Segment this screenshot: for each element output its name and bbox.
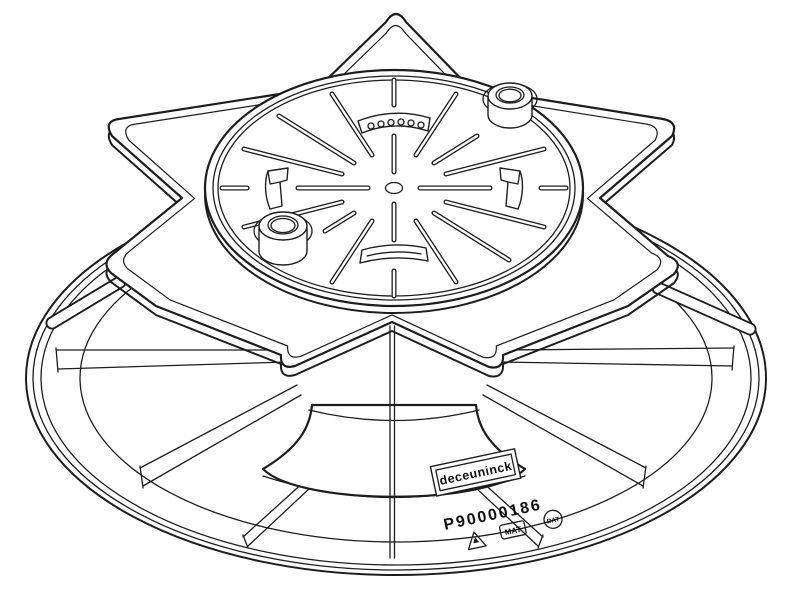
pedestal-isometric-drawing: deceuninck P90000186 MAT DAT [0, 0, 791, 600]
dat-stamp-text: DAT [546, 516, 560, 526]
technical-drawing-page: deceuninck P90000186 MAT DAT [0, 0, 791, 600]
mat-stamp: MAT [499, 520, 526, 539]
dat-stamp: DAT [542, 509, 563, 530]
recycle-triangle-icon [465, 530, 486, 549]
boss-lower-left [254, 212, 312, 265]
part-number: P90000186 [442, 497, 543, 534]
boss-upper-right [483, 83, 537, 128]
